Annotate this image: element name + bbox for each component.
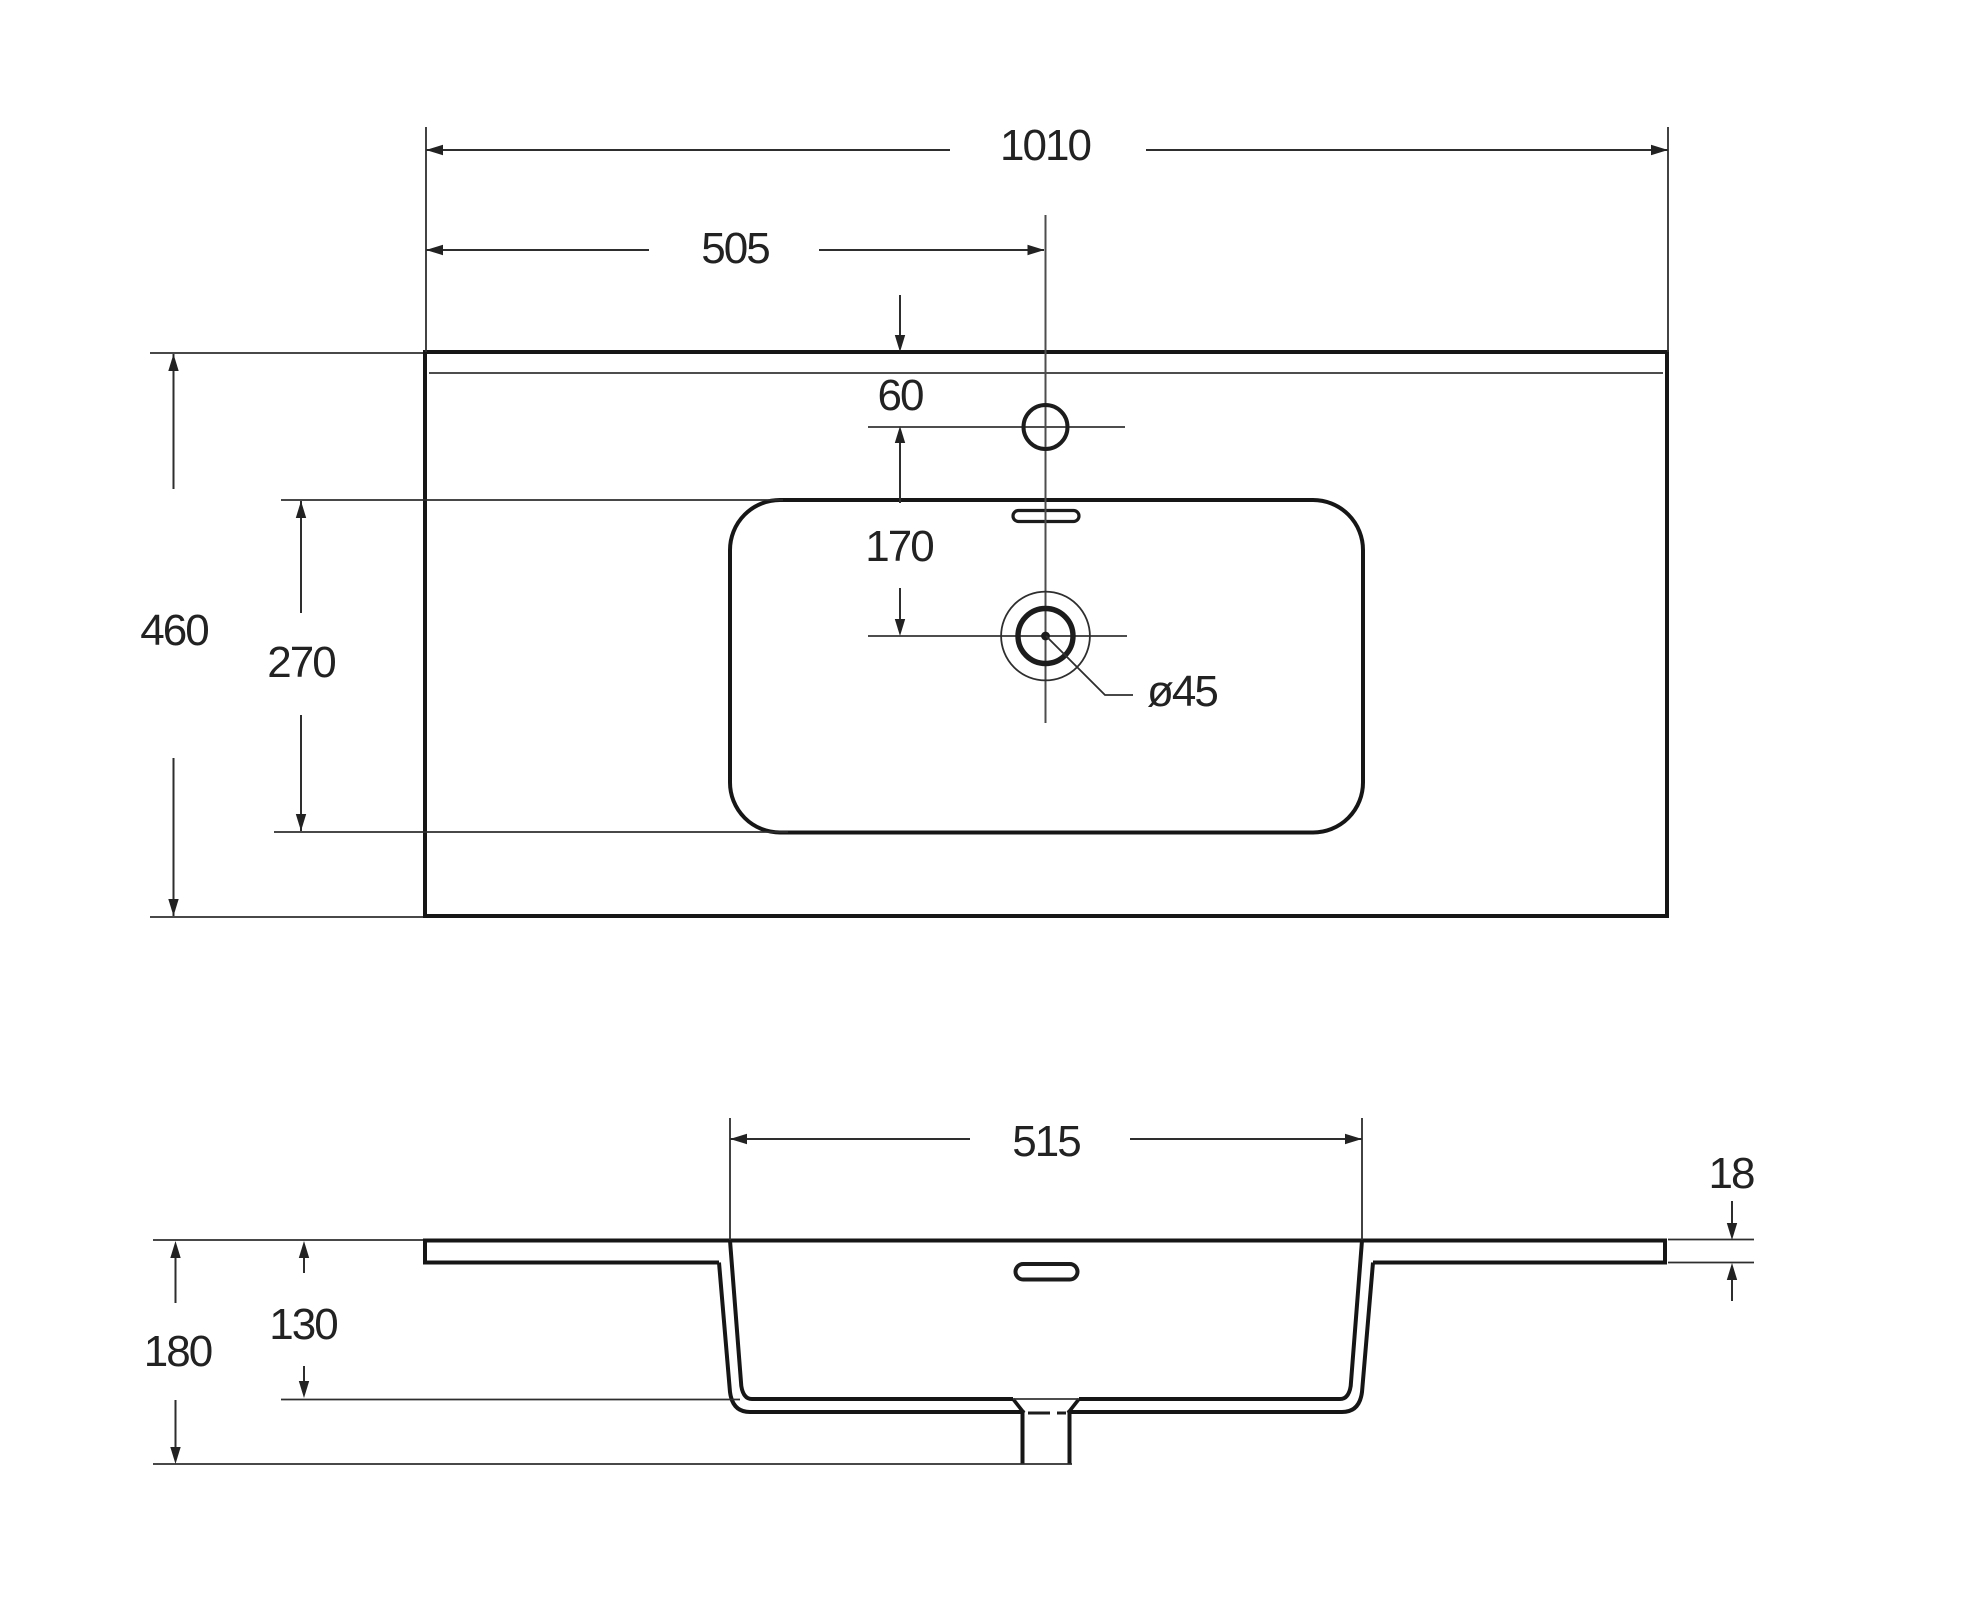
svg-text:60: 60 [878,371,923,420]
svg-text:170: 170 [865,522,933,571]
svg-text:270: 270 [267,638,335,687]
svg-text:ø45: ø45 [1147,667,1217,716]
svg-text:460: 460 [140,606,208,655]
svg-text:515: 515 [1012,1117,1080,1166]
svg-text:505: 505 [701,224,769,273]
svg-text:18: 18 [1709,1149,1754,1198]
svg-text:180: 180 [144,1327,212,1376]
svg-text:130: 130 [269,1300,337,1349]
svg-text:1010: 1010 [1000,121,1090,170]
